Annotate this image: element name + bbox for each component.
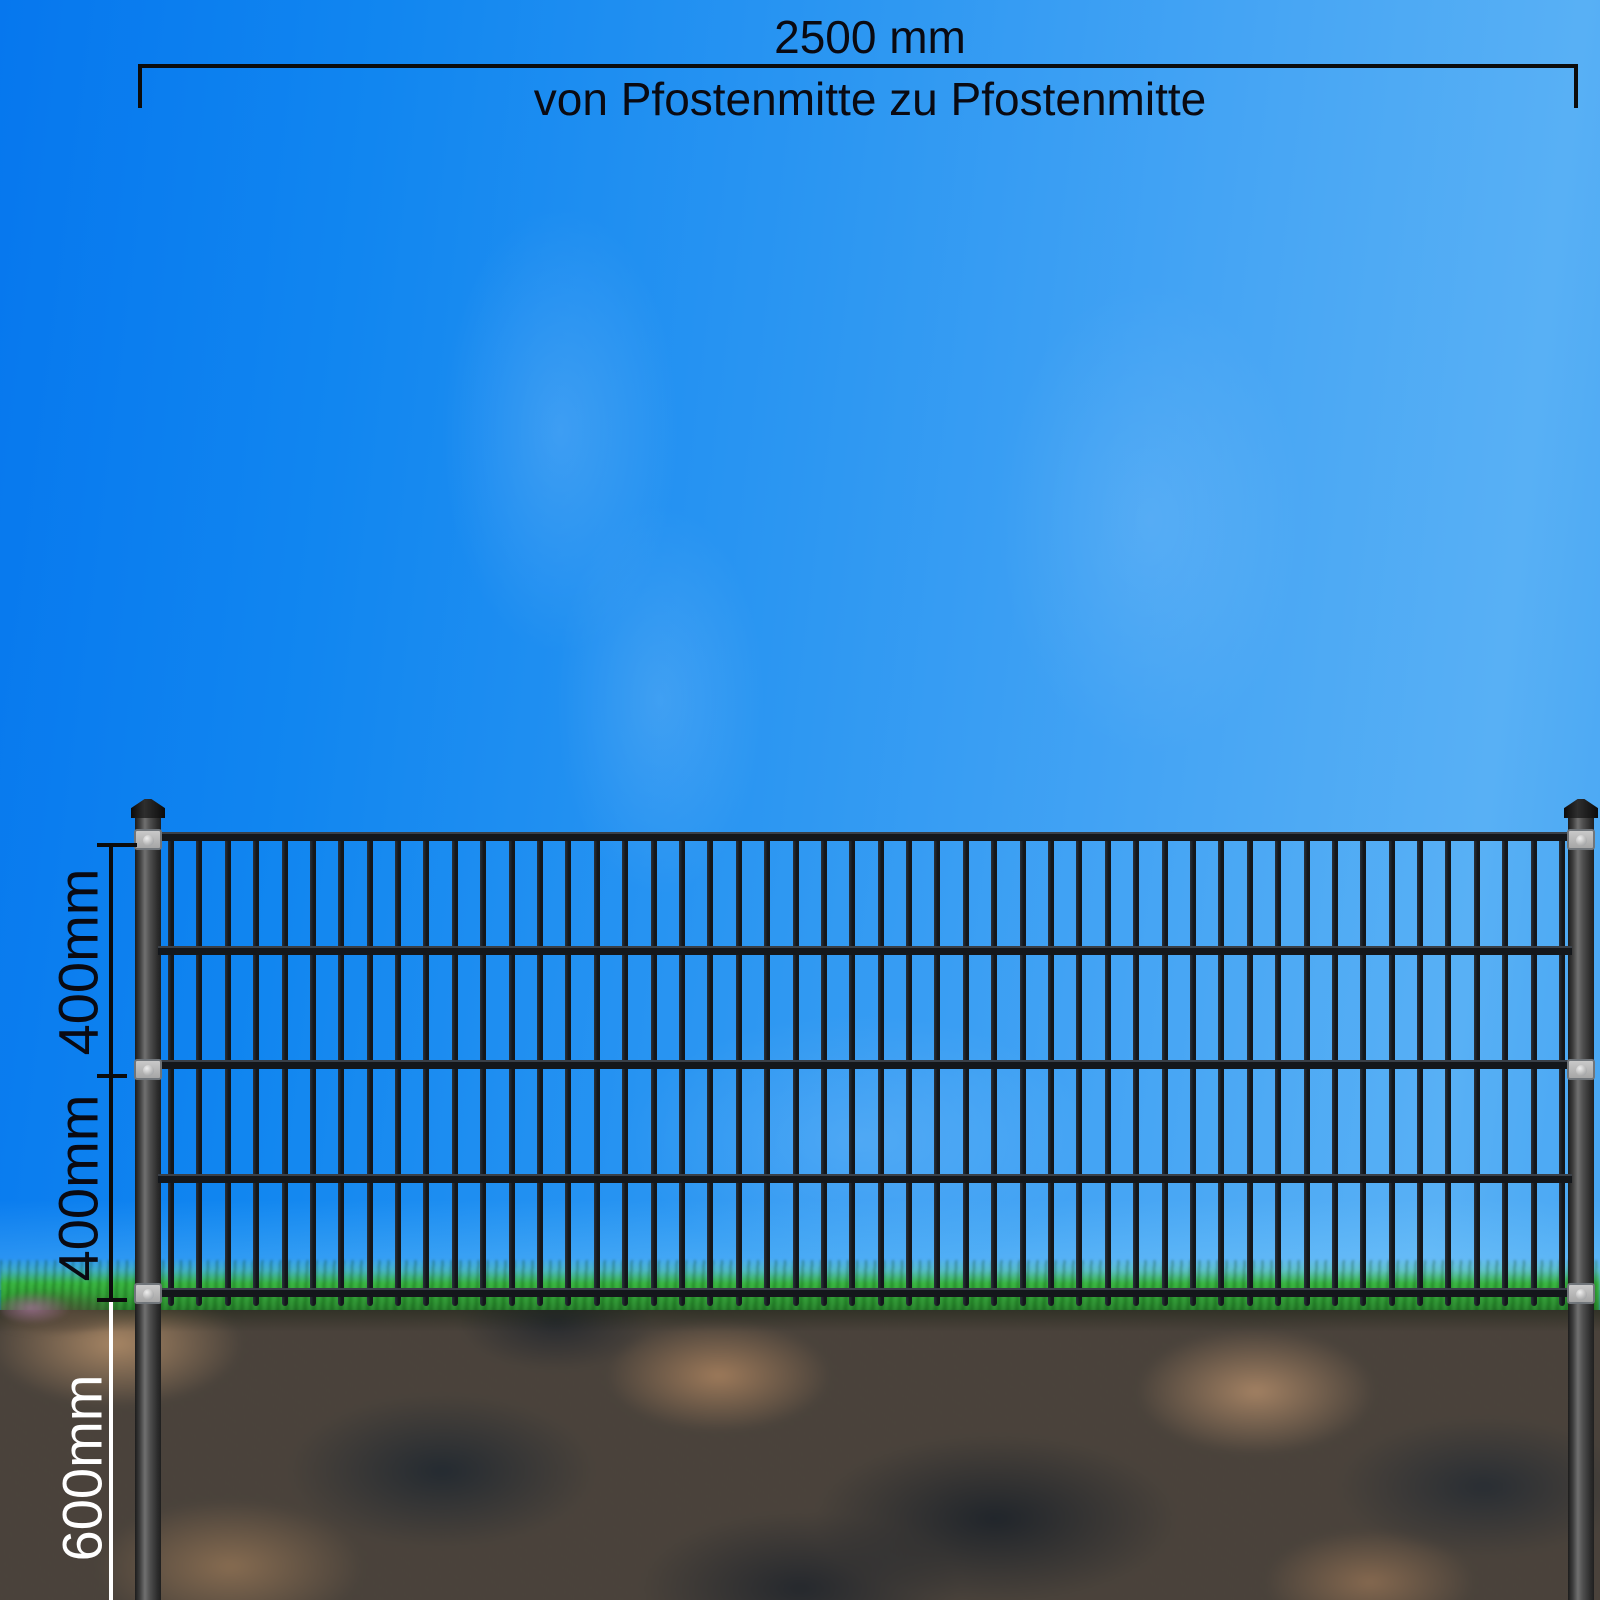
mesh-vertical-bar xyxy=(1559,832,1565,1306)
mesh-vertical-bar xyxy=(196,832,202,1306)
mesh-horizontal-rail xyxy=(158,946,1572,955)
clamp-screw-icon xyxy=(143,835,154,846)
mesh-vertical-bar xyxy=(509,832,515,1306)
soil-top-shadow xyxy=(0,1310,1600,1332)
mesh-vertical-bar xyxy=(253,832,259,1306)
mesh-vertical-bar xyxy=(1445,832,1451,1306)
mesh-vertical-bar xyxy=(225,832,231,1306)
mesh-vertical-bar xyxy=(1389,832,1395,1306)
mesh-vertical-bar xyxy=(480,832,486,1306)
mesh-vertical-bar xyxy=(1020,832,1026,1306)
clamp-screw-icon xyxy=(1576,1289,1587,1300)
soil-ground xyxy=(0,1310,1600,1600)
post-clamp xyxy=(1567,1283,1595,1304)
mesh-vertical-bar xyxy=(1417,832,1423,1306)
mesh-vertical-bar xyxy=(934,832,940,1306)
fence-post-left xyxy=(135,817,161,1600)
mesh-vertical-bar xyxy=(1218,832,1224,1306)
mesh-vertical-bar xyxy=(367,832,373,1306)
clamp-screw-icon xyxy=(1576,1065,1587,1076)
mesh-vertical-bar xyxy=(821,832,827,1306)
mesh-vertical-bar xyxy=(1048,832,1054,1306)
clamp-screw-icon xyxy=(143,1289,154,1300)
mesh-vertical-bar xyxy=(594,832,600,1306)
mesh-horizontal-rail xyxy=(158,1174,1572,1183)
mesh-vertical-bar xyxy=(1162,832,1168,1306)
mesh-vertical-bar xyxy=(679,832,685,1306)
post-clamp xyxy=(1567,829,1595,850)
mesh-vertical-bar xyxy=(622,832,628,1306)
mesh-vertical-bar xyxy=(565,832,571,1306)
mesh-vertical-bar xyxy=(764,832,770,1306)
mesh-vertical-bar xyxy=(1474,832,1480,1306)
mesh-horizontal-rail xyxy=(158,832,1572,841)
mesh-horizontal-rail xyxy=(158,1060,1572,1069)
mesh-vertical-bar xyxy=(1105,832,1111,1306)
soil-texture xyxy=(0,1310,1600,1600)
dimension-tick-middle xyxy=(97,1074,127,1078)
clamp-screw-icon xyxy=(1576,835,1587,846)
mesh-vertical-bar xyxy=(282,832,288,1306)
post-clamp xyxy=(134,1059,162,1080)
mesh-vertical-bar xyxy=(906,832,912,1306)
mesh-vertical-bar xyxy=(707,832,713,1306)
lower-field-height-label: 400mm xyxy=(46,1095,111,1282)
post-clamp xyxy=(134,1283,162,1304)
mesh-vertical-bar xyxy=(395,832,401,1306)
mesh-vertical-bar xyxy=(310,832,316,1306)
mesh-vertical-bar xyxy=(793,832,799,1306)
dimension-tick-top xyxy=(97,843,137,847)
mesh-vertical-bar xyxy=(1275,832,1281,1306)
upper-field-height-label: 400mm xyxy=(46,869,111,1056)
mesh-vertical-bar xyxy=(1133,832,1139,1306)
mesh-horizontal-rail xyxy=(158,1288,1572,1297)
width-dimension-value: 2500 mm xyxy=(170,12,1570,63)
post-depth-label: 600mm xyxy=(50,1375,115,1562)
clamp-screw-icon xyxy=(143,1065,154,1076)
mesh-vertical-bar xyxy=(1502,832,1508,1306)
fence-dimension-diagram: 2500 mm von Pfostenmitte zu Pfostenmitte… xyxy=(0,0,1600,1600)
mesh-vertical-bar xyxy=(849,832,855,1306)
mesh-vertical-bar xyxy=(1360,832,1366,1306)
mesh-vertical-bar xyxy=(1190,832,1196,1306)
fence-post-right xyxy=(1568,817,1594,1600)
mesh-vertical-bar xyxy=(1247,832,1253,1306)
mesh-vertical-bar xyxy=(991,832,997,1306)
mesh-vertical-bar xyxy=(1076,832,1082,1306)
mesh-vertical-bar xyxy=(168,832,174,1306)
post-clamp xyxy=(134,829,162,850)
mesh-vertical-bar xyxy=(963,832,969,1306)
mesh-vertical-bar xyxy=(423,832,429,1306)
mesh-vertical-bar xyxy=(1332,832,1338,1306)
mesh-vertical-bar xyxy=(1531,832,1537,1306)
mesh-vertical-bar xyxy=(878,832,884,1306)
mesh-vertical-bar xyxy=(1304,832,1310,1306)
width-dimension-caption: von Pfostenmitte zu Pfostenmitte xyxy=(170,74,1570,125)
mesh-vertical-bar xyxy=(452,832,458,1306)
mesh-vertical-bar xyxy=(537,832,543,1306)
mesh-vertical-bar xyxy=(651,832,657,1306)
mesh-vertical-bar xyxy=(338,832,344,1306)
flower-patch xyxy=(0,1292,70,1324)
post-clamp xyxy=(1567,1059,1595,1080)
mesh-vertical-bar xyxy=(736,832,742,1306)
